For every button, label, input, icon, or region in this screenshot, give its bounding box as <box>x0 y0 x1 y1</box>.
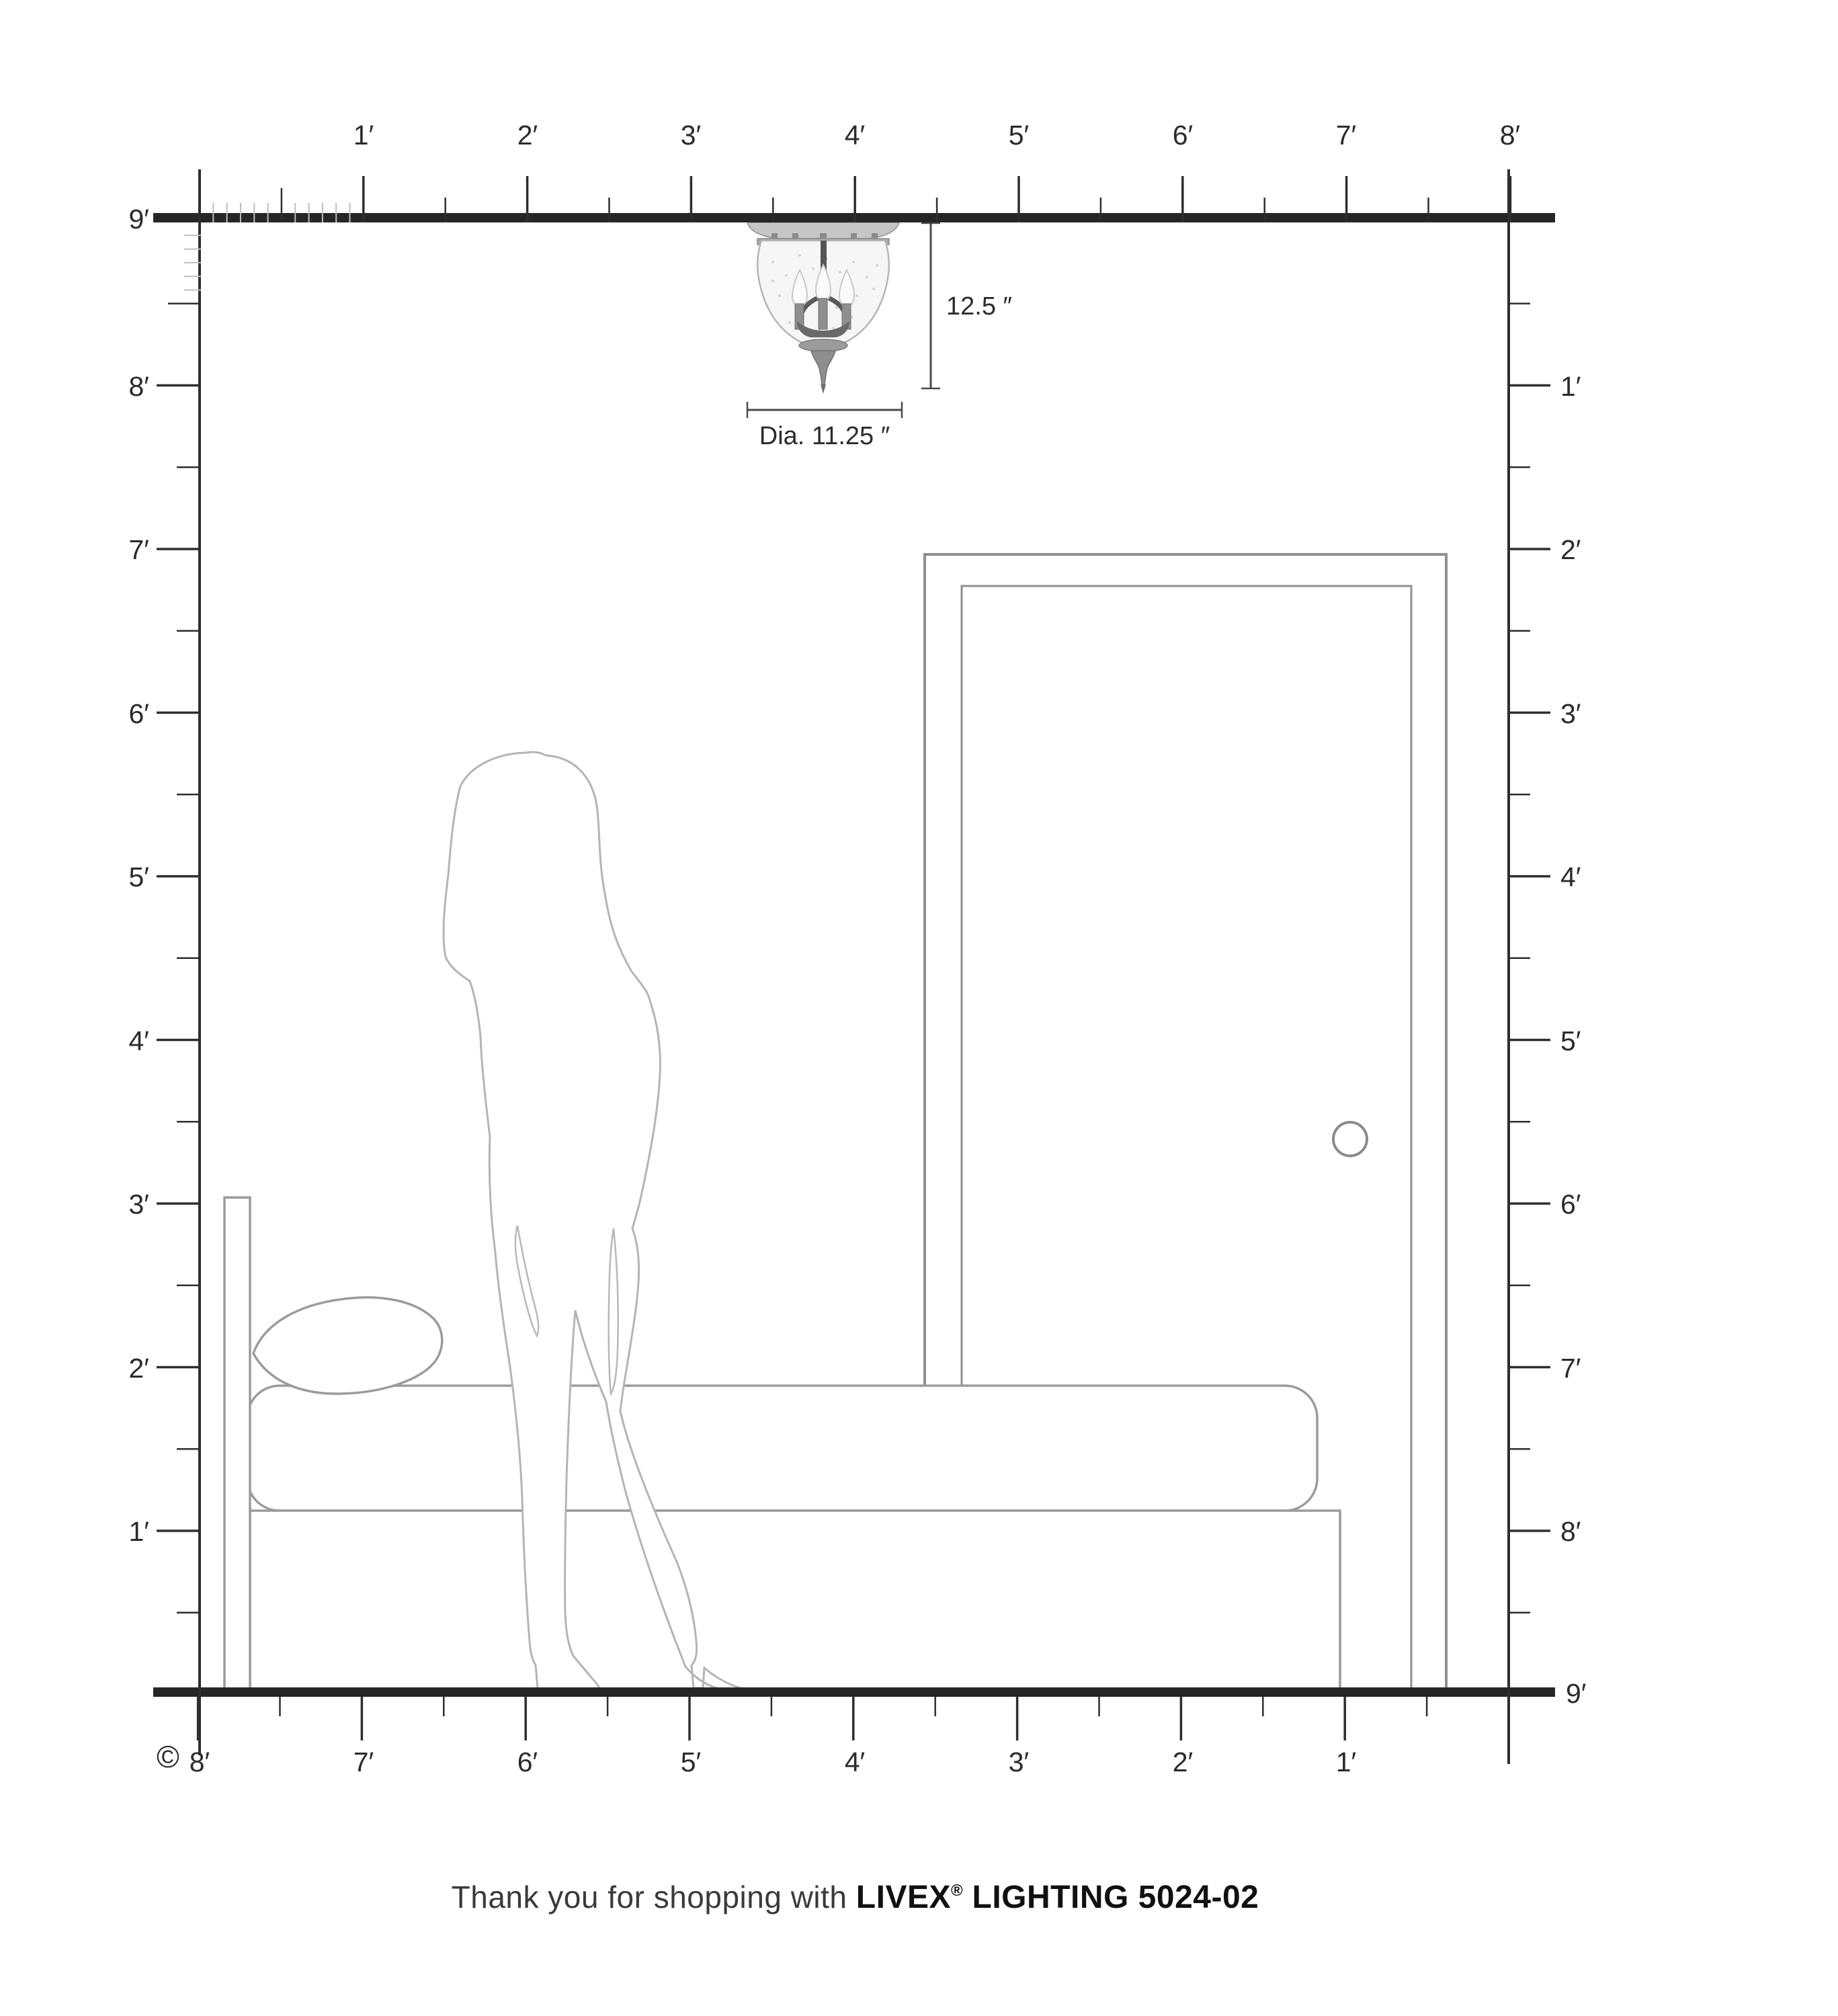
ruler-label: 5′ <box>1560 1025 1581 1056</box>
ruler-label: 2′ <box>517 120 538 151</box>
ruler-label: 7′ <box>1560 1353 1581 1384</box>
ruler-label: 3′ <box>681 120 702 151</box>
ruler-label: 9′ <box>129 204 150 235</box>
ruler-label: 5′ <box>681 1747 702 1777</box>
ruler-label: 2′ <box>1560 534 1581 565</box>
footer-text: Thank you for shopping with LIVEX® LIGHT… <box>452 1899 1259 1910</box>
diameter-dimension-label: Dia. 11.25 ″ <box>759 422 890 450</box>
scale-diagram-page: 12.5 ″ Dia. 11.25 ″ 1′ 2′ 3′ 4′ 5′ 6′ 7′… <box>0 0 1838 2016</box>
ceiling-fixture <box>747 222 899 394</box>
scale-diagram-svg: 12.5 ″ Dia. 11.25 ″ 1′ 2′ 3′ 4′ 5′ 6′ 7′… <box>0 0 1838 2016</box>
fixture-finial-tip <box>821 384 826 394</box>
ruler-label: 6′ <box>517 1747 538 1777</box>
ruler-label: 1′ <box>1560 371 1581 402</box>
right-ruler-labels: 1′ 2′ 3′ 4′ 5′ 6′ 7′ 8′ 9′ <box>1560 371 1587 1709</box>
ruler-label: 6′ <box>129 698 150 729</box>
ruler-label: 2′ <box>1173 1747 1194 1777</box>
ruler-label: 5′ <box>1009 120 1030 151</box>
copyright-symbol: © <box>157 1739 179 1774</box>
ruler-label: 2′ <box>129 1353 150 1384</box>
ruler-label: 1′ <box>129 1516 150 1547</box>
ruler-label: 4′ <box>845 120 866 151</box>
door-knob <box>1333 1122 1367 1156</box>
ruler-label: 1′ <box>1336 1747 1357 1777</box>
ruler-label: 7′ <box>1336 120 1357 151</box>
bottom-ruler-labels: 8′ 7′ 6′ 5′ 4′ 3′ 2′ 1′ <box>190 1747 1357 1777</box>
registered-trademark-icon: ® <box>951 1882 963 1900</box>
ruler-label: 9′ <box>1566 1678 1587 1709</box>
ruler-label: 8′ <box>1560 1516 1581 1547</box>
fixture-bottom-cap <box>799 339 847 351</box>
ruler-label: 4′ <box>1560 862 1581 892</box>
bottom-ruler-ticks <box>198 1696 1427 1740</box>
bed-mattress <box>247 1386 1317 1511</box>
left-ruler-ticks <box>157 235 201 1612</box>
diameter-dimension <box>747 402 902 418</box>
ruler-label: 8′ <box>190 1747 210 1777</box>
footer-model-number: LIGHTING 5024-02 <box>963 1880 1259 1915</box>
ruler-label: 3′ <box>1560 698 1581 729</box>
footer-brand-name: LIVEX <box>856 1880 951 1915</box>
ruler-label: 7′ <box>353 1747 374 1777</box>
ruler-label: 1′ <box>353 120 374 151</box>
ruler-label: 6′ <box>1560 1189 1581 1220</box>
ruler-label: 5′ <box>129 862 150 892</box>
bed-base <box>250 1511 1340 1691</box>
ruler-label: 6′ <box>1173 120 1194 151</box>
height-dimension <box>921 223 940 388</box>
floor-bar <box>153 1687 1555 1697</box>
ruler-label: 8′ <box>129 371 150 402</box>
bed-pillow <box>253 1298 442 1394</box>
footer: Thank you for shopping with LIVEX® LIGHT… <box>0 1879 1838 1916</box>
footer-thankyou-text: Thank you for shopping with <box>452 1880 856 1915</box>
ruler-label: 3′ <box>129 1189 150 1220</box>
top-ruler-labels: 1′ 2′ 3′ 4′ 5′ 6′ 7′ 8′ <box>353 120 1521 151</box>
height-dimension-label: 12.5 ″ <box>946 292 1012 321</box>
right-ruler-ticks <box>1507 304 1550 1613</box>
ruler-label: 4′ <box>845 1747 866 1777</box>
ruler-label: 8′ <box>1500 120 1521 151</box>
ruler-label: 7′ <box>129 534 150 565</box>
ruler-label: 4′ <box>129 1025 150 1056</box>
bed-headboard <box>224 1198 250 1691</box>
ruler-label: 3′ <box>1009 1747 1030 1777</box>
fixture-finial <box>811 351 835 384</box>
left-ruler-labels: 9′ 8′ 7′ 6′ 5′ 4′ 3′ 2′ 1′ <box>129 204 150 1547</box>
